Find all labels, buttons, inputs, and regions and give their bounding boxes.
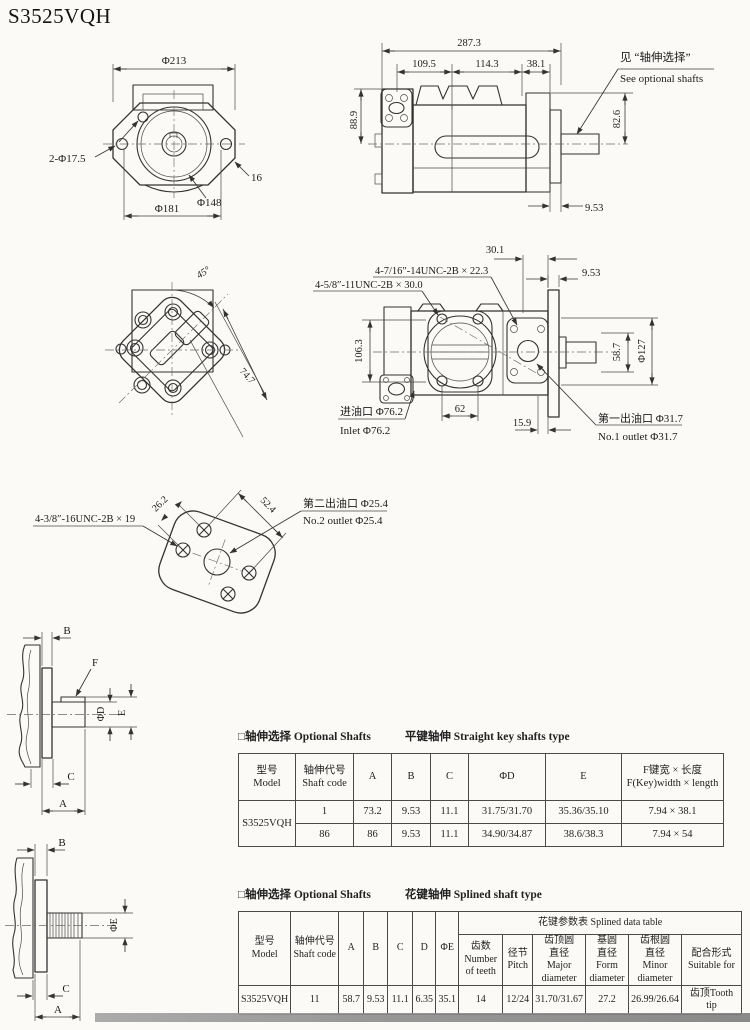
rear-view-drawing: 45° 74.7: [95, 252, 310, 452]
splined-table-title-main: □轴伸选择 Optional Shafts: [238, 889, 371, 901]
outlet-flange-drawing: 4-3/8″-16UNC-2B × 19 26.2 52.4 第二出油口 Φ25…: [25, 475, 455, 620]
outlet2-label-zh: 第二出油口 Φ25.4: [303, 496, 389, 510]
dim-301-label: 30.1: [486, 245, 504, 256]
dim-e-label: E: [117, 710, 128, 716]
dim-953-top-label: 9.53: [582, 268, 600, 279]
cell: 9.53: [364, 986, 388, 1015]
dim-dia213-label: Φ213: [162, 55, 187, 67]
cell: 35.36/35.10: [546, 801, 622, 824]
header-cell: B: [392, 754, 431, 801]
spline-shaft-outline: [5, 858, 117, 978]
cell: 38.6/38.3: [546, 824, 622, 847]
spline-group-header: 花键参数表 Splined data table: [459, 912, 742, 935]
ports-view-outline: [373, 290, 613, 417]
table-header-row: 型号 Model 轴伸代号 Shaft code A B C ΦD E F键宽 …: [239, 754, 724, 801]
header-cell: D: [413, 912, 436, 986]
straight-table-title: □轴伸选择 Optional Shafts平键轴伸 Straight key s…: [238, 728, 750, 744]
dim-c-label: C: [62, 983, 69, 995]
spline-shaft-drawing: B ΦE C A: [5, 828, 240, 1024]
outlet-flange-outline: [153, 505, 281, 618]
splined-table-title: □轴伸选择 Optional Shafts花键轴伸 Splined shaft …: [238, 886, 750, 902]
side-view-dimensions: 287.3 109.5 114.3 38.1 88.9 82.6 9.53 见 …: [349, 38, 714, 214]
rear-view-outline: [105, 282, 240, 417]
dim-45deg-label: 45°: [195, 264, 213, 281]
straight-shaft-table: 型号 Model 轴伸代号 Shaft code A B C ΦD E F键宽 …: [238, 753, 724, 847]
header-cell: 配合形式 Suitable for: [682, 935, 742, 986]
cell: 7.94 × 54: [622, 824, 724, 847]
dim-16-label: 16: [251, 172, 263, 184]
side-view-outline: [368, 86, 628, 193]
cell: 26.99/26.64: [629, 986, 682, 1015]
document-page: S3525VQH Φ213 2-Φ17.5 16 Φ148: [0, 0, 750, 1030]
header-cell: F键宽 × 长度 F(Key)width × length: [622, 754, 724, 801]
cell: 7.94 × 38.1: [622, 801, 724, 824]
header-cell: 基圆 直径 Form diameter: [586, 935, 629, 986]
cell: 31.75/31.70: [469, 801, 546, 824]
thread-7-16-label: 4-7/16″-14UNC-2B × 22.3: [375, 266, 488, 277]
cell: 11: [291, 986, 339, 1015]
side-view-drawing: 287.3 109.5 114.3 38.1 88.9 82.6 9.53 见 …: [328, 30, 750, 222]
dim-1063-label: 106.3: [354, 339, 365, 363]
header-cell: ΦE: [436, 912, 459, 986]
scan-artifact-bar: [95, 1013, 750, 1022]
outlet2-label-en: No.2 outlet Φ25.4: [303, 515, 383, 527]
cell: 73.2: [354, 801, 392, 824]
ports-view-dimensions: 30.1 9.53 4-7/16″-14UNC-2B × 22.3 4-5/8″…: [313, 245, 684, 443]
cell: 27.2: [586, 986, 629, 1015]
header-cell: 轴伸代号 Shaft code: [291, 912, 339, 986]
key-shaft-dimensions: B F ΦD E C A: [15, 625, 137, 815]
dim-b-label: B: [58, 837, 65, 849]
header-cell: A: [339, 912, 364, 986]
straight-table-title-type: 平键轴伸 Straight key shafts type: [405, 731, 570, 743]
thread-5-8-label: 4-5/8″-11UNC-2B × 30.0: [315, 280, 423, 291]
header-cell: C: [388, 912, 413, 986]
dim-holes-label: 2-Φ17.5: [49, 153, 86, 165]
dim-c-label: C: [67, 771, 74, 783]
cell: 9.53: [392, 801, 431, 824]
dim-287-label: 287.3: [457, 38, 481, 49]
dim-a-label: A: [59, 798, 67, 810]
cell: 34.90/34.87: [469, 824, 546, 847]
straight-shaft-table-section: □轴伸选择 Optional Shafts平键轴伸 Straight key s…: [238, 728, 750, 847]
header-cell: ΦD: [469, 754, 546, 801]
front-view-drawing: Φ213 2-Φ17.5 16 Φ148 Φ181: [45, 50, 285, 222]
dim-dia181-label: Φ181: [155, 203, 180, 215]
splined-table-title-type: 花键轴伸 Splined shaft type: [405, 889, 542, 901]
dim-953-label: 9.53: [585, 203, 603, 214]
header-cell: 齿数 Number of teeth: [459, 935, 503, 986]
table-header-row: 型号 Model 轴伸代号 Shaft code A B C D ΦE 花键参数…: [239, 912, 742, 935]
cell: 9.53: [392, 824, 431, 847]
dim-62-label: 62: [455, 404, 466, 415]
dim-diad-label: ΦD: [96, 707, 107, 722]
note-optional-shafts-zh: 见 “轴伸选择”: [620, 50, 691, 64]
key-shaft-outline: [7, 645, 123, 767]
table-row: S3525VQH 11 58.7 9.53 11.1 6.35 35.1 14 …: [239, 986, 742, 1015]
inlet-label-zh: 进油口 Φ76.2: [340, 404, 403, 418]
dim-114-label: 114.3: [475, 59, 498, 70]
header-cell: 齿顶圆 直径 Major diameter: [533, 935, 586, 986]
cell: 11.1: [431, 801, 469, 824]
cell: 11.1: [388, 986, 413, 1015]
cell: 11.1: [431, 824, 469, 847]
splined-shaft-table-section: □轴伸选择 Optional Shafts花键轴伸 Splined shaft …: [238, 886, 750, 1015]
cell: 齿顶Tooth tip: [682, 986, 742, 1015]
dim-109-label: 109.5: [412, 59, 436, 70]
dim-dia127-label: Φ127: [637, 339, 648, 362]
header-cell: 齿根圆 直径 Minor diameter: [629, 935, 682, 986]
model-cell: S3525VQH: [239, 986, 291, 1015]
inlet-label-en: Inlet Φ76.2: [340, 425, 390, 437]
header-cell: 轴伸代号 Shaft code: [296, 754, 354, 801]
key-shaft-drawing: B F ΦD E C A: [5, 618, 240, 823]
dim-diae-label: ΦE: [109, 918, 120, 931]
page-title: S3525VQH: [8, 4, 111, 29]
cell: 86: [296, 824, 354, 847]
dim-747-label: 74.7: [237, 366, 257, 386]
model-cell: S3525VQH: [239, 801, 296, 847]
cell: 1: [296, 801, 354, 824]
cell: 35.1: [436, 986, 459, 1015]
table-row: S3525VQH 1 73.2 9.53 11.1 31.75/31.70 35…: [239, 801, 724, 824]
outlet1-label-zh: 第一出油口 Φ31.7: [598, 411, 684, 425]
dim-b-label: B: [63, 625, 70, 637]
cell: 58.7: [339, 986, 364, 1015]
header-cell: 型号 Model: [239, 754, 296, 801]
cell: 14: [459, 986, 503, 1015]
splined-shaft-table: 型号 Model 轴伸代号 Shaft code A B C D ΦE 花键参数…: [238, 911, 742, 1015]
cell: 31.70/31.67: [533, 986, 586, 1015]
dim-524-label: 52.4: [258, 495, 278, 515]
table-row: 86 86 9.53 11.1 34.90/34.87 38.6/38.3 7.…: [239, 824, 724, 847]
header-cell: E: [546, 754, 622, 801]
header-cell: B: [364, 912, 388, 986]
dim-159-label: 15.9: [513, 418, 531, 429]
straight-table-title-main: □轴伸选择 Optional Shafts: [238, 731, 371, 743]
dim-587-label: 58.7: [612, 343, 623, 361]
cell: 12/24: [503, 986, 533, 1015]
header-cell: A: [354, 754, 392, 801]
dim-dia148-label: Φ148: [197, 197, 222, 209]
header-cell: C: [431, 754, 469, 801]
dim-262-label: 26.2: [150, 494, 170, 514]
dim-82-label: 82.6: [612, 110, 623, 128]
header-cell: 型号 Model: [239, 912, 291, 986]
dim-a-label: A: [54, 1004, 62, 1016]
cell: 6.35: [413, 986, 436, 1015]
dim-f-label: F: [92, 657, 98, 669]
thread-3-8-label: 4-3/8″-16UNC-2B × 19: [35, 514, 135, 525]
dim-88-label: 88.9: [349, 111, 360, 129]
header-cell: 径节 Pitch: [503, 935, 533, 986]
cell: 86: [354, 824, 392, 847]
front-view-dimensions: Φ213 2-Φ17.5 16 Φ148 Φ181: [49, 55, 263, 220]
outlet1-label-en: No.1 outlet Φ31.7: [598, 431, 678, 443]
note-optional-shafts-en: See optional shafts: [620, 73, 703, 85]
ports-view-drawing: 30.1 9.53 4-7/16″-14UNC-2B × 22.3 4-5/8″…: [298, 233, 750, 448]
dim-38-label: 38.1: [527, 59, 545, 70]
